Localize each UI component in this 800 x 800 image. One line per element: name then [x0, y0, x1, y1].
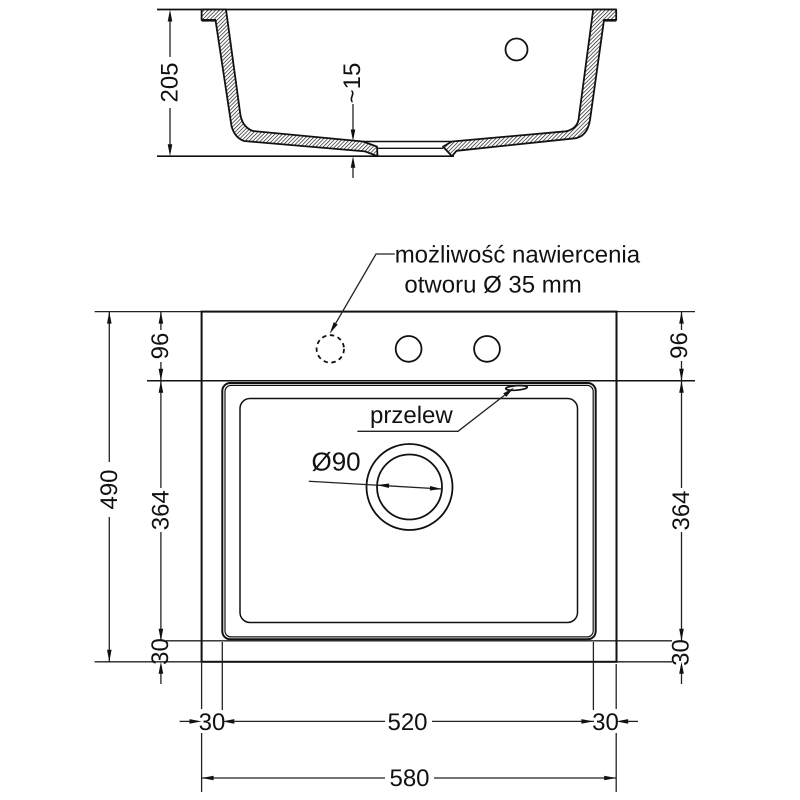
svg-text:~15: ~15 — [339, 63, 366, 104]
svg-text:490: 490 — [96, 469, 123, 509]
svg-text:możliwość nawiercenia: możliwość nawiercenia — [395, 242, 641, 269]
svg-text:30: 30 — [668, 639, 695, 666]
svg-text:364: 364 — [148, 490, 175, 530]
svg-text:364: 364 — [668, 490, 695, 530]
svg-text:30: 30 — [147, 638, 174, 665]
svg-text:205: 205 — [157, 62, 184, 102]
svg-text:96: 96 — [147, 333, 174, 360]
svg-text:Ø90: Ø90 — [312, 447, 361, 477]
svg-text:przelew: przelew — [370, 402, 453, 429]
svg-text:otworu Ø 35 mm: otworu Ø 35 mm — [404, 272, 581, 299]
svg-text:580: 580 — [389, 765, 429, 792]
svg-text:520: 520 — [387, 709, 427, 736]
svg-text:30: 30 — [199, 709, 226, 736]
svg-text:96: 96 — [666, 332, 693, 359]
svg-text:30: 30 — [592, 709, 619, 736]
